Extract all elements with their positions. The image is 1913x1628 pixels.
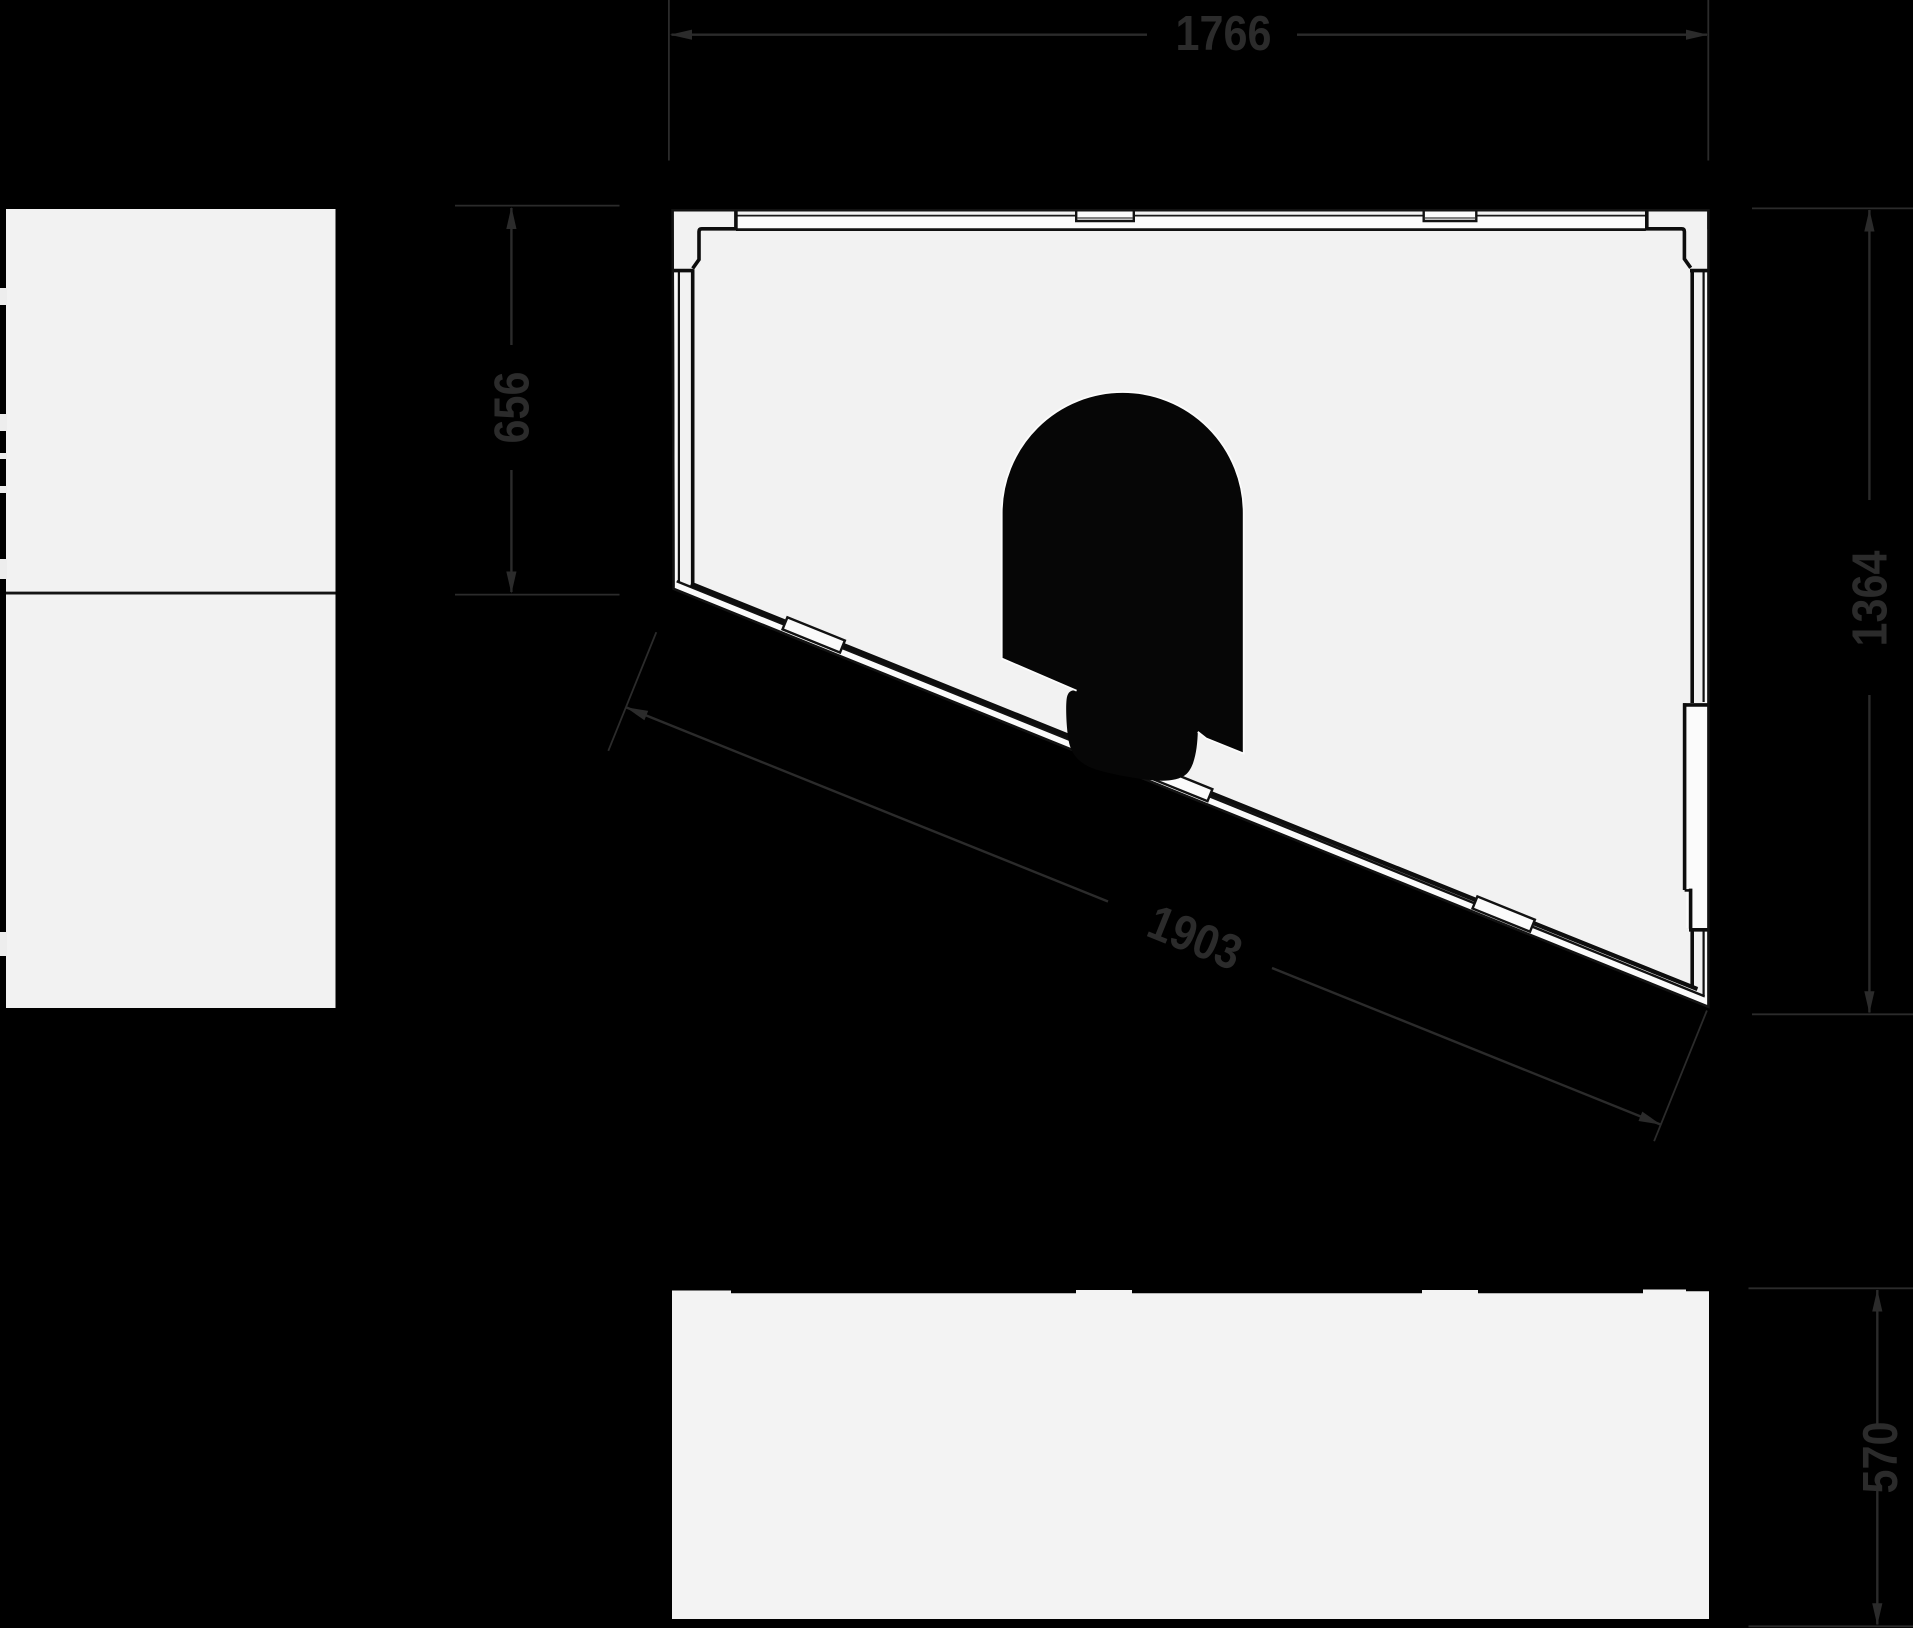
svg-text:1364: 1364	[1842, 550, 1897, 646]
svg-text:570: 570	[1852, 1422, 1907, 1494]
svg-text:1766: 1766	[1176, 6, 1272, 61]
svg-text:656: 656	[484, 372, 539, 444]
